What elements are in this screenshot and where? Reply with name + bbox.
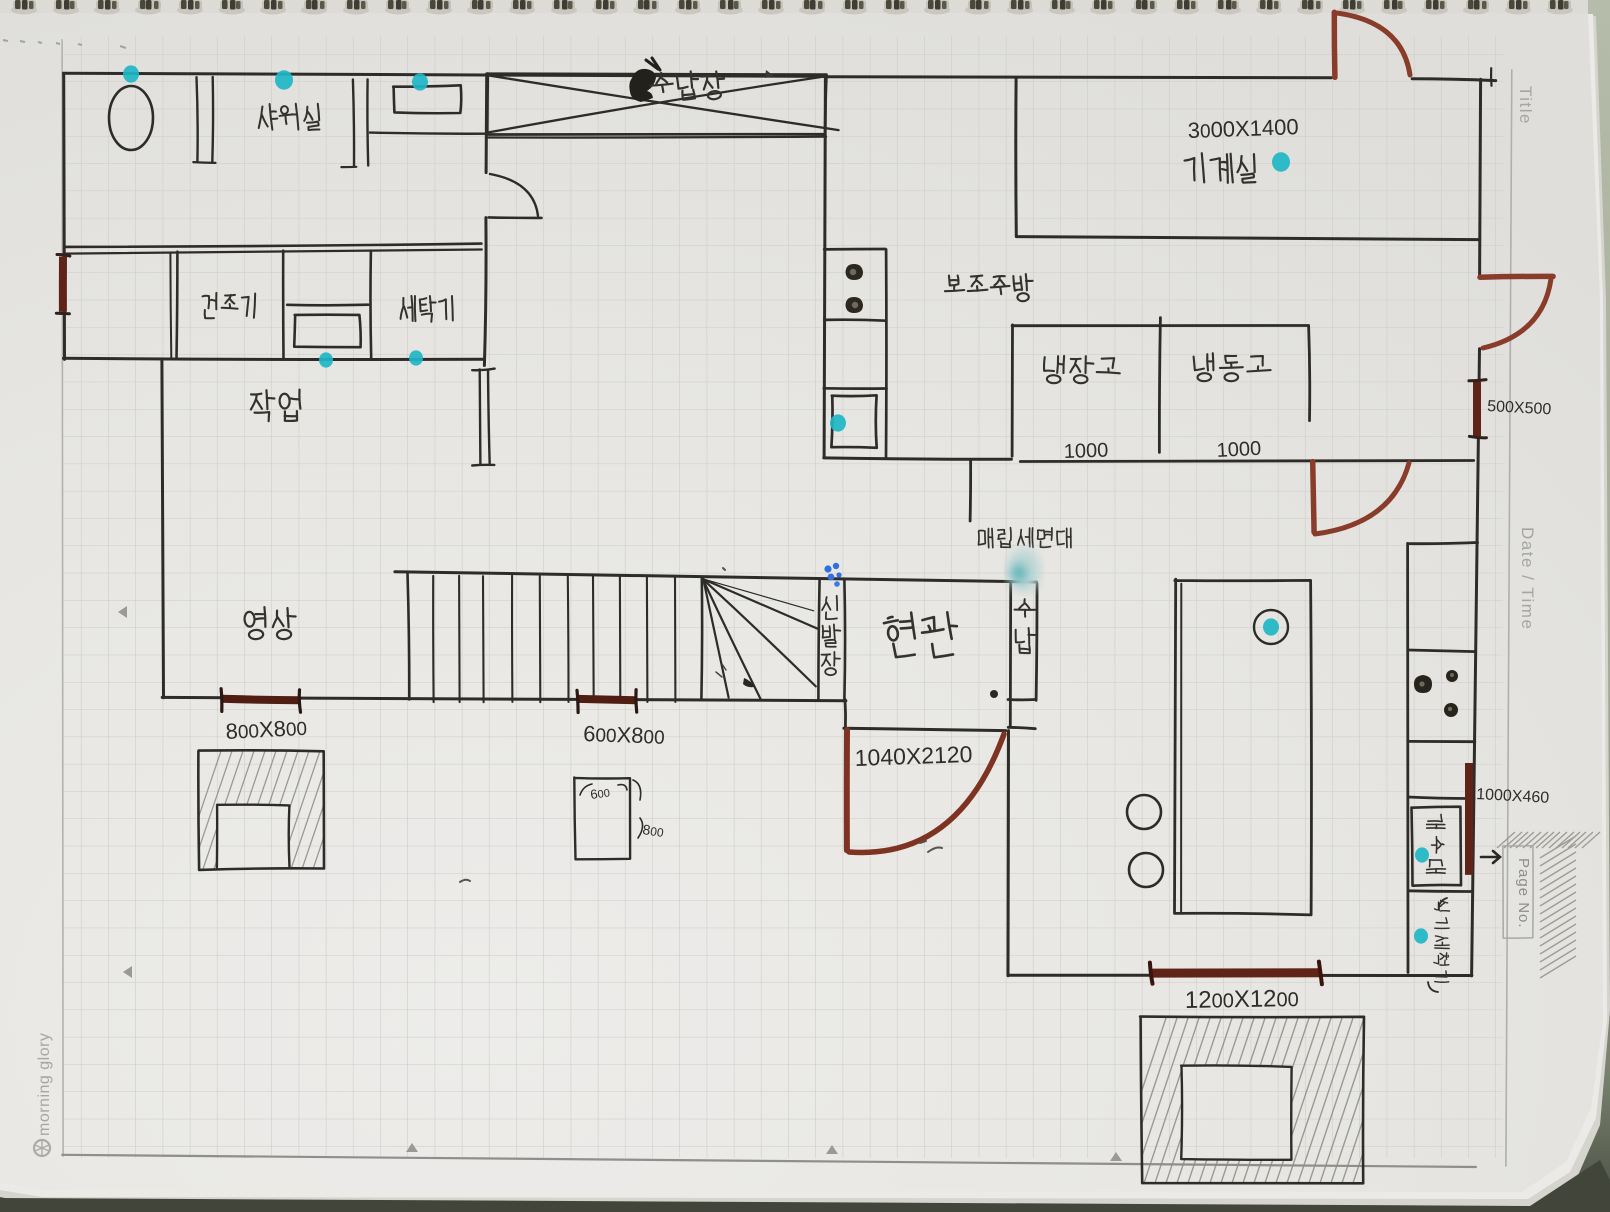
svg-text:Title: Title: [1516, 86, 1535, 125]
svg-text:1000: 1000: [1216, 438, 1262, 462]
svg-text:1200X1200: 1200X1200: [1185, 985, 1299, 1014]
svg-text:Page No.: Page No.: [1515, 858, 1532, 929]
svg-text:1000: 1000: [1063, 439, 1108, 463]
svg-text:morning glory: morning glory: [36, 1033, 53, 1136]
svg-text:Date / Time: Date / Time: [1518, 527, 1537, 630]
svg-text:500X500: 500X500: [1487, 398, 1552, 418]
svg-text:1040X2120: 1040X2120: [854, 741, 973, 771]
